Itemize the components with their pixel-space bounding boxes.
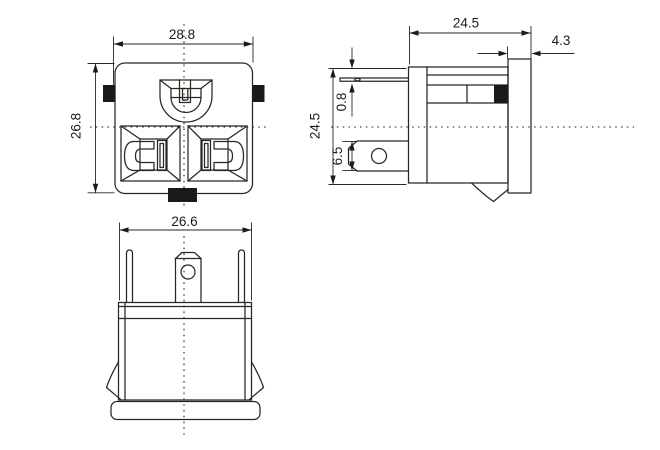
bottom-right-pin <box>239 250 245 302</box>
ground-slot-center-slot <box>180 80 191 103</box>
blade-outline <box>176 253 202 303</box>
arrowhead <box>114 41 123 46</box>
arrowhead <box>532 51 541 56</box>
technical-drawing-page: 28.8 26.8 <box>0 0 660 450</box>
lower-slot-left <box>121 126 180 181</box>
slot-contact-c-shape <box>125 142 155 171</box>
side-snap-tab <box>494 85 508 103</box>
drawing: 28.8 26.8 <box>69 16 635 437</box>
dimension-label: 26.6 <box>171 214 197 229</box>
dimension-label: 24.5 <box>308 113 323 139</box>
arrowhead <box>243 227 252 232</box>
front-bottom-snap-tab <box>168 188 197 202</box>
front-left-snap-tab <box>103 85 116 102</box>
side-top-pin <box>340 78 408 81</box>
bottom-left-pin <box>127 250 133 302</box>
arrowhead <box>93 64 98 73</box>
terminal-height-dimension: 6.5 <box>330 142 357 171</box>
lower-slot-right <box>188 126 247 181</box>
arrowhead <box>349 84 354 93</box>
front-width-dimension: 28.8 <box>114 27 254 86</box>
slot-funnel-diagonals <box>121 126 180 181</box>
dimension-label: 4.3 <box>552 33 571 48</box>
arrowhead <box>410 30 419 35</box>
side-height-dimension: 24.5 <box>308 69 407 185</box>
blade-outline <box>349 141 409 171</box>
side-depth-dimension: 24.5 <box>410 16 532 65</box>
arrowhead <box>93 184 98 193</box>
bottom-body-internal-lines <box>119 303 252 401</box>
bottom-width-dimension: 26.6 <box>120 214 252 300</box>
slot-contact-bar <box>158 141 167 171</box>
blade-hole <box>372 149 387 164</box>
front-right-snap-tab <box>252 85 265 102</box>
bottom-flange <box>111 402 260 420</box>
side-terminal-blade <box>349 141 409 171</box>
ground-slot-facets <box>160 80 212 89</box>
ground-slot-center-slot-inner <box>183 89 188 101</box>
dimension-label: 0.8 <box>334 93 349 112</box>
three-view-connector-drawing: 28.8 26.8 <box>0 0 660 450</box>
slot-contact-bar-inner <box>160 144 164 168</box>
pin-thickness-dimension: 0.8 <box>334 48 355 116</box>
arrowhead <box>349 60 354 69</box>
arrowhead <box>499 51 508 56</box>
ground-slot <box>160 80 212 122</box>
arrowhead <box>330 69 335 78</box>
flange-thickness-dimension: 4.3 <box>478 33 574 58</box>
side-body-internal-lines <box>427 67 508 183</box>
blade-hole <box>181 265 195 279</box>
side-view: 24.5 4.3 24.5 <box>308 16 575 202</box>
arrowhead <box>120 227 129 232</box>
arrowhead <box>244 41 253 46</box>
bottom-body-outline <box>119 303 252 401</box>
bottom-center-blade <box>176 253 202 303</box>
ground-slot-inner-box <box>171 89 201 98</box>
front-view: 28.8 26.8 <box>69 27 265 202</box>
arrowhead <box>330 176 335 185</box>
side-flange <box>508 59 531 193</box>
pin-hole-mark <box>355 78 360 81</box>
dimension-label: 24.5 <box>453 16 479 31</box>
dimension-label: 6.5 <box>330 147 345 166</box>
dimension-label: 28.8 <box>169 27 195 42</box>
arrowhead <box>522 30 531 35</box>
front-height-dimension: 26.8 <box>69 64 115 193</box>
dimension-label: 26.8 <box>69 113 84 139</box>
pin-outline <box>340 78 408 81</box>
arrowhead <box>349 142 354 151</box>
side-bottom-wing <box>472 184 508 202</box>
bottom-view: 26.6 <box>107 214 264 420</box>
